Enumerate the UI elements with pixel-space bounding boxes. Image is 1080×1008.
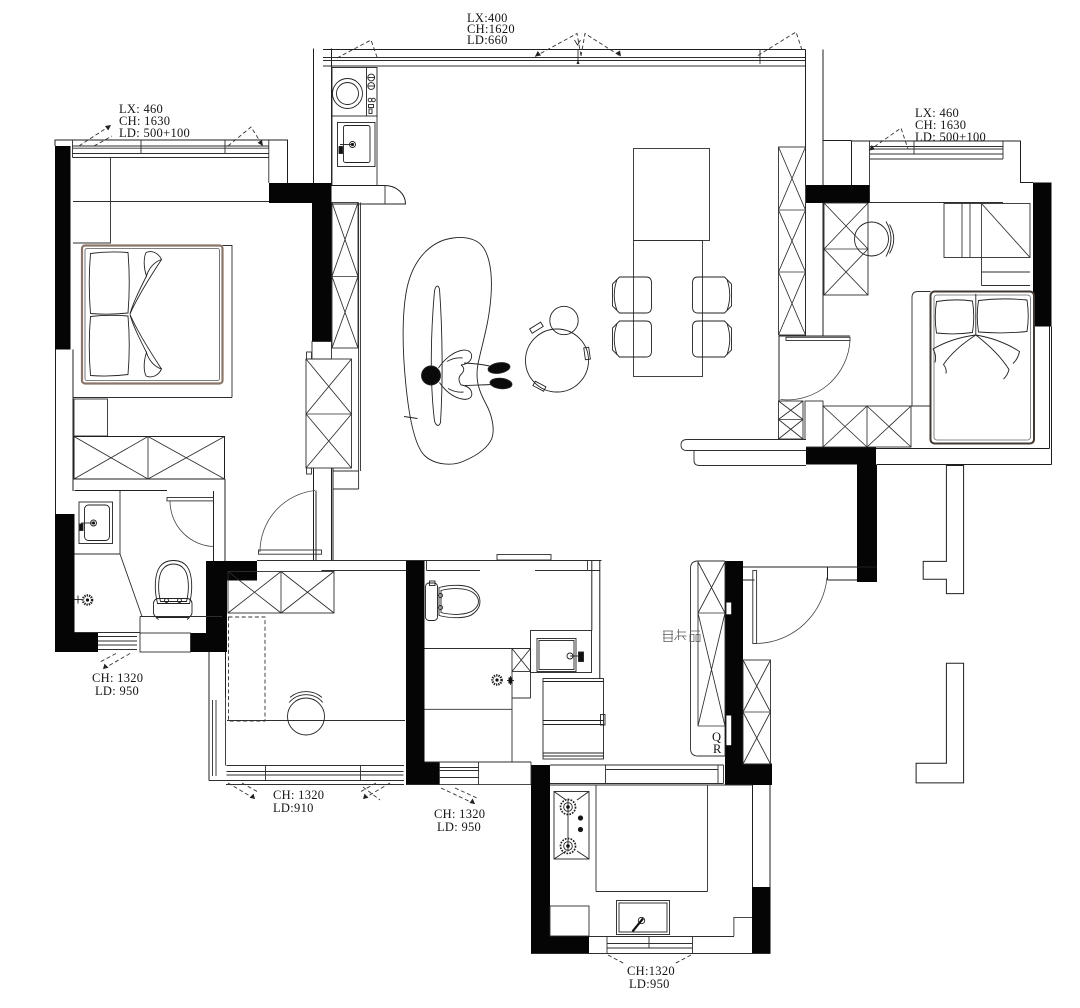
svg-text:LD:660: LD:660 [467, 33, 508, 47]
svg-text:LD: 950: LD: 950 [95, 684, 139, 698]
svg-text:CH: 1320: CH: 1320 [273, 788, 324, 802]
svg-text:LD: 500+100: LD: 500+100 [915, 130, 986, 144]
svg-text:CH: 1320: CH: 1320 [92, 671, 143, 685]
svg-text:LD:950: LD:950 [629, 977, 670, 991]
svg-text:CH: 1320: CH: 1320 [434, 807, 485, 821]
svg-text:LD:910: LD:910 [273, 801, 314, 815]
svg-text:CH:1320: CH:1320 [627, 964, 675, 978]
svg-text:LD: 950: LD: 950 [437, 820, 481, 834]
svg-text:LD: 500+100: LD: 500+100 [119, 126, 190, 140]
svg-text:R: R [713, 742, 722, 756]
